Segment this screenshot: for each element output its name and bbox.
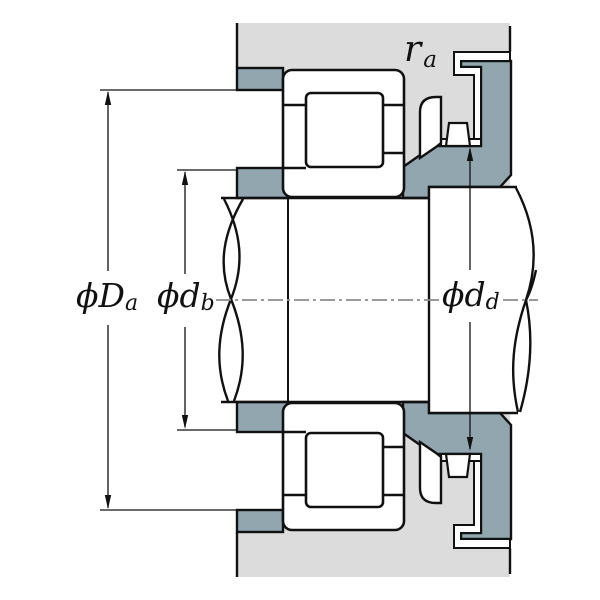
housing-shoulder-spacer-top <box>237 68 283 90</box>
label-db: ϕdb <box>157 276 215 316</box>
label-ra-sub: a <box>423 47 437 73</box>
roller-top <box>306 93 383 167</box>
roller-bottom <box>306 433 383 507</box>
label-dd-sub: d <box>486 290 500 315</box>
label-db-sub: b <box>201 291 215 316</box>
bearing-cross-section-diagram: ϕDa ϕdb ϕdd ra <box>0 0 600 600</box>
dim-Da-arrow-up <box>105 91 111 105</box>
shaft-break-right-curve-2 <box>526 270 536 300</box>
locating-lug-top <box>446 123 470 146</box>
label-Da-sub: a <box>125 291 138 316</box>
dim-Da-arrow-down <box>105 495 111 509</box>
label-Da: ϕDa <box>76 276 138 316</box>
shaft-shoulder-spacer-bottom <box>237 402 288 432</box>
bearing-top <box>283 70 404 197</box>
label-Da-main: ϕD <box>76 276 125 315</box>
locating-lug-bottom <box>446 454 470 477</box>
dim-db-arrow-down <box>182 415 188 429</box>
housing-shoulder-spacer-bottom <box>237 510 283 532</box>
drawing-canvas: ϕDa ϕdb ϕdd ra <box>0 0 600 600</box>
air-gap-top-left <box>237 90 285 168</box>
bearing-bottom <box>283 403 404 530</box>
shaft-shoulder-spacer-top <box>237 168 288 198</box>
dim-db-arrow-up <box>182 171 188 185</box>
air-gap-bottom-left <box>237 432 285 510</box>
label-db-main: ϕd <box>157 276 201 315</box>
label-dd-main: ϕd <box>442 275 486 314</box>
label-ra-main: r <box>404 29 423 70</box>
